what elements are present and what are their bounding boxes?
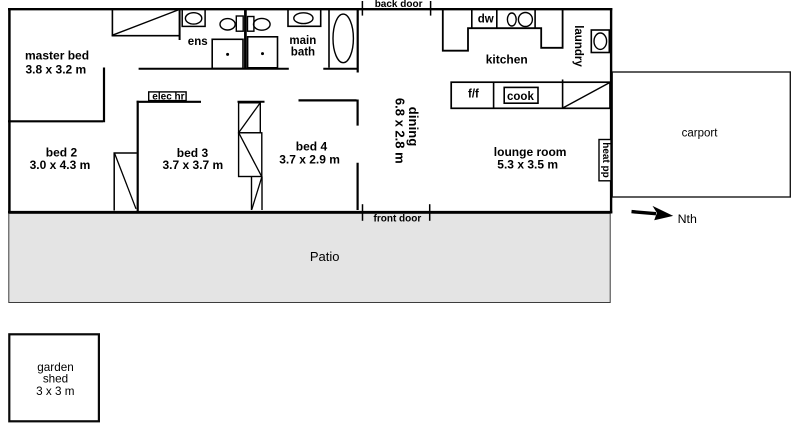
- svg-text:5.3 x 3.5 m: 5.3 x 3.5 m: [497, 158, 558, 172]
- svg-text:3.7 x 2.9 m: 3.7 x 2.9 m: [279, 153, 340, 167]
- svg-text:cook: cook: [507, 91, 534, 103]
- svg-text:6.8 x 2.8 m: 6.8 x 2.8 m: [392, 98, 407, 164]
- svg-text:kitchen: kitchen: [486, 52, 528, 66]
- svg-text:shed: shed: [43, 372, 68, 385]
- svg-text:front door: front door: [374, 214, 422, 225]
- svg-text:bath: bath: [291, 47, 315, 59]
- svg-text:3.0 x 4.3 m: 3.0 x 4.3 m: [30, 158, 91, 172]
- svg-text:Patio: Patio: [310, 249, 340, 264]
- svg-text:back door: back door: [375, 0, 423, 10]
- svg-text:carport: carport: [682, 127, 719, 139]
- svg-text:3.7 x 3.7 m: 3.7 x 3.7 m: [163, 158, 224, 172]
- svg-text:heat pp: heat pp: [600, 142, 611, 178]
- svg-text:3 x 3 m: 3 x 3 m: [36, 385, 74, 398]
- svg-text:laundry: laundry: [572, 25, 584, 67]
- svg-text:ens: ens: [188, 36, 208, 48]
- svg-text:main: main: [289, 35, 316, 47]
- svg-text:elec hr: elec hr: [152, 92, 184, 103]
- svg-text:Nth: Nth: [678, 212, 697, 226]
- svg-text:dw: dw: [478, 14, 494, 26]
- svg-text:master bed: master bed: [25, 48, 89, 62]
- svg-text:3.8 x 3.2 m: 3.8 x 3.2 m: [26, 62, 87, 76]
- svg-text:f/f: f/f: [468, 89, 479, 101]
